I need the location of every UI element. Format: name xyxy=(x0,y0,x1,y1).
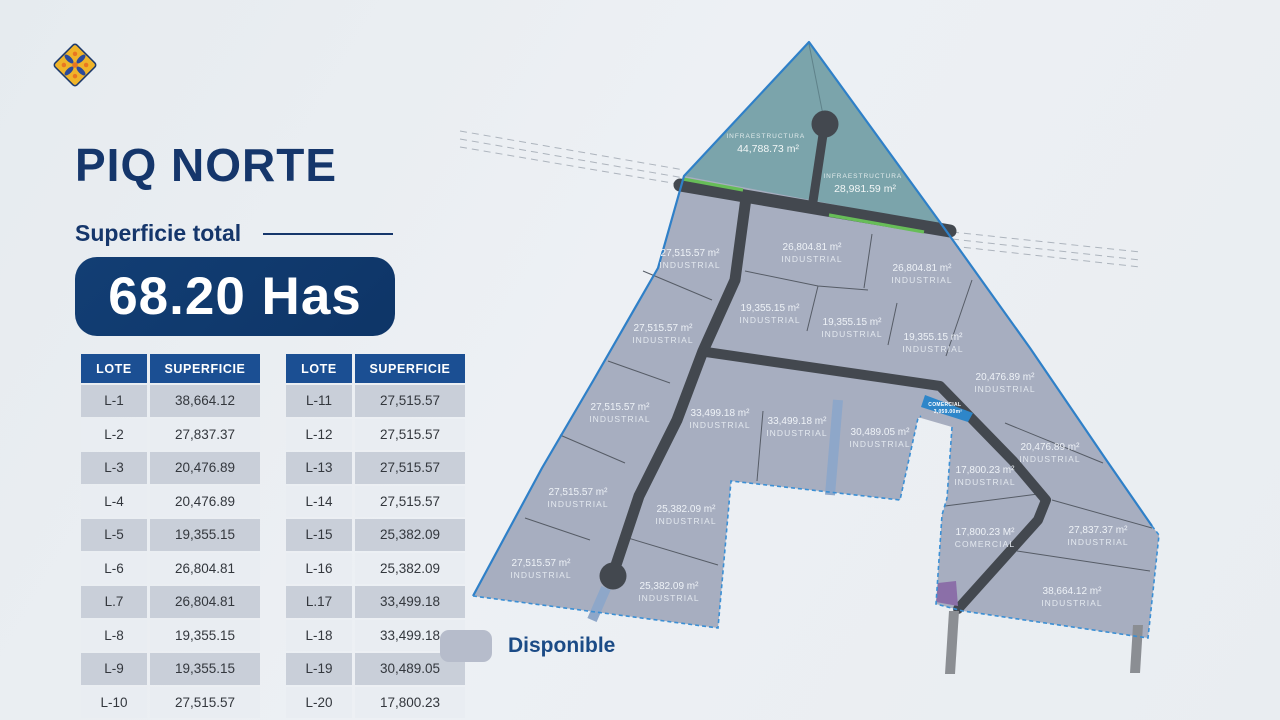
table-row: L-1127,515.57 xyxy=(286,385,465,417)
table-row: L-1027,515.57 xyxy=(81,687,260,719)
table-row: L-1227,515.57 xyxy=(286,419,465,451)
lot-cell: L-13 xyxy=(286,452,352,484)
area-cell: 19,355.15 xyxy=(150,653,260,685)
legend-available-label: Disponible xyxy=(508,634,615,658)
lot-cell: L-9 xyxy=(81,653,147,685)
table-row: L-1327,515.57 xyxy=(286,452,465,484)
lot-cell: L-14 xyxy=(286,486,352,518)
table-row: L-138,664.12 xyxy=(81,385,260,417)
table-row: L-227,837.37 xyxy=(81,419,260,451)
table-row: L-819,355.15 xyxy=(81,620,260,652)
area-cell: 26,804.81 xyxy=(150,586,260,618)
area-cell: 27,515.57 xyxy=(150,687,260,719)
table-row: L-1930,489.05 xyxy=(286,653,465,685)
area-cell: 27,837.37 xyxy=(150,419,260,451)
column-header-superficie: SUPERFICIE xyxy=(150,354,260,383)
lot-cell: L-16 xyxy=(286,553,352,585)
lot-table-right-body: L-1127,515.57L-1227,515.57L-1327,515.57L… xyxy=(286,385,465,718)
lot-tables: LOTE SUPERFICIE L-138,664.12L-227,837.37… xyxy=(78,352,468,720)
area-cell: 38,664.12 xyxy=(150,385,260,417)
purple-parcel xyxy=(936,581,958,606)
north-cul-de-sac xyxy=(812,111,839,138)
offsite-road-dashes-left xyxy=(460,131,684,185)
area-cell: 20,476.89 xyxy=(150,486,260,518)
table-row: L.726,804.81 xyxy=(81,586,260,618)
table-row: L-919,355.15 xyxy=(81,653,260,685)
table-row: L-626,804.81 xyxy=(81,553,260,585)
lot-cell: L.17 xyxy=(286,586,352,618)
table-row: L-1427,515.57 xyxy=(286,486,465,518)
legend-available-swatch xyxy=(440,630,492,662)
lot-table-left: LOTE SUPERFICIE L-138,664.12L-227,837.37… xyxy=(78,352,263,720)
lot-cell: L-18 xyxy=(286,620,352,652)
lot-cell: L-6 xyxy=(81,553,147,585)
south-road-stub-left xyxy=(945,611,959,674)
area-cell: 26,804.81 xyxy=(150,553,260,585)
total-area-value: 68.20 Has xyxy=(108,266,362,327)
table-row: L-320,476.89 xyxy=(81,452,260,484)
table-row: L-519,355.15 xyxy=(81,519,260,551)
table-row: L-420,476.89 xyxy=(81,486,260,518)
area-cell: 20,476.89 xyxy=(150,452,260,484)
table-row: L.1733,499.18 xyxy=(286,586,465,618)
lot-cell: L-2 xyxy=(81,419,147,451)
total-area-badge: 68.20 Has xyxy=(75,257,395,336)
area-cell: 17,800.23 xyxy=(355,687,465,719)
column-header-lote: LOTE xyxy=(81,354,147,383)
superficie-row: Superficie total xyxy=(75,220,395,247)
lot-cell: L-10 xyxy=(81,687,147,719)
superficie-label: Superficie total xyxy=(75,220,241,247)
south-cul-de-sac xyxy=(600,563,627,590)
lot-cell: L-4 xyxy=(81,486,147,518)
lot-cell: L.7 xyxy=(81,586,147,618)
page-title: PIQ NORTE xyxy=(75,138,337,192)
brand-logo xyxy=(46,36,104,94)
lot-cell: L-20 xyxy=(286,687,352,719)
lot-cell: L-1 xyxy=(81,385,147,417)
lot-cell: L-15 xyxy=(286,519,352,551)
offsite-road-dashes-right xyxy=(952,232,1140,267)
flower-diamond-icon xyxy=(46,36,104,94)
lot-cell: L-19 xyxy=(286,653,352,685)
table-row: L-1625,382.09 xyxy=(286,553,465,585)
table-row: L-1833,499.18 xyxy=(286,620,465,652)
lot-cell: L-11 xyxy=(286,385,352,417)
divider-line xyxy=(263,233,393,235)
area-cell: 19,355.15 xyxy=(150,620,260,652)
piq-norte-slide: PIQ NORTE Superficie total 68.20 Has LOT… xyxy=(0,0,1280,720)
lot-cell: L-12 xyxy=(286,419,352,451)
table-row: L-1525,382.09 xyxy=(286,519,465,551)
site-plan-map: INFRAESTRUCTURA 44,788.73 m² INFRAESTRUC… xyxy=(440,28,1200,688)
column-header-lote: LOTE xyxy=(286,354,352,383)
lot-cell: L-3 xyxy=(81,452,147,484)
lot-cell: L-8 xyxy=(81,620,147,652)
lot-cell: L-5 xyxy=(81,519,147,551)
legend: Disponible xyxy=(440,630,615,662)
lot-table-left-body: L-138,664.12L-227,837.37L-320,476.89L-42… xyxy=(81,385,260,718)
area-cell: 19,355.15 xyxy=(150,519,260,551)
table-row: L-2017,800.23 xyxy=(286,687,465,719)
